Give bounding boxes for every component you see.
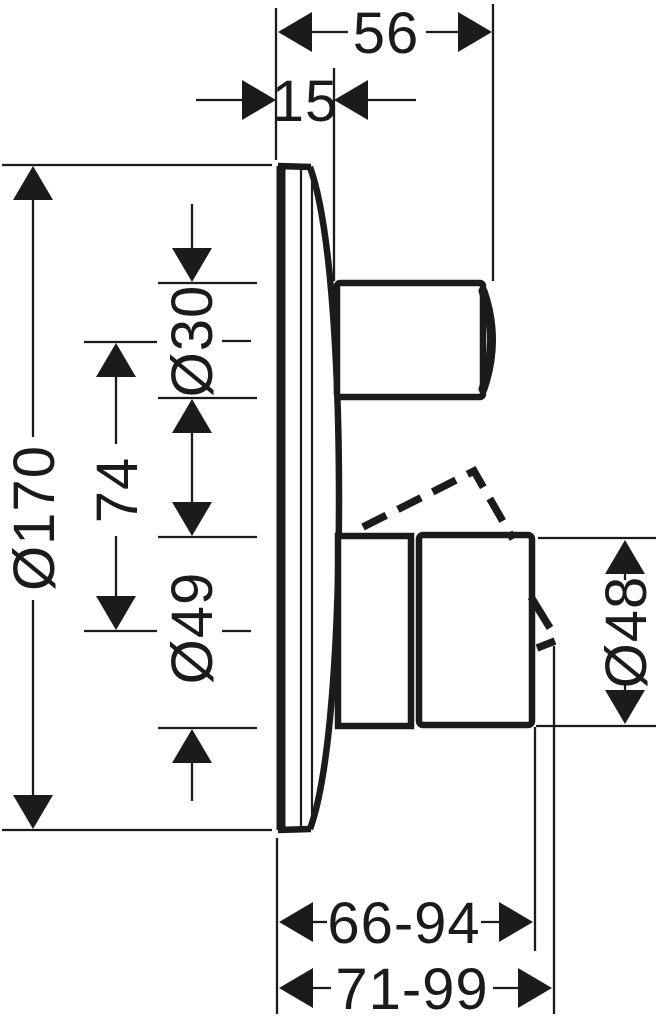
arrow-right-icon: [458, 12, 492, 52]
dimension-15: 15: [196, 68, 416, 281]
lever-base: [338, 536, 411, 726]
dimension-label-30: Ø30: [160, 285, 225, 398]
lever-raised-dashed-outline: [363, 471, 513, 539]
plate-bottom-edge: [278, 829, 311, 830]
arrow-up-icon: [172, 729, 212, 763]
arrow-up-icon: [96, 343, 136, 377]
lever-raised-dash-tip-2: [537, 641, 555, 648]
dimension-label-56: 56: [353, 1, 420, 66]
plate-top-edge: [278, 166, 311, 167]
arrow-left-icon: [279, 968, 313, 1008]
arrow-down-icon: [172, 502, 212, 536]
arrow-right-icon: [499, 902, 533, 942]
fixture: [278, 166, 555, 830]
arrow-down-icon: [172, 248, 212, 282]
arrow-right-icon: [518, 968, 552, 1008]
technical-dimension-drawing: 56 15 Ø170: [0, 0, 658, 1024]
dimension-label-48: Ø48: [594, 576, 658, 689]
dimension-label-15: 15: [272, 69, 339, 134]
dimension-label-71-99: 71-99: [335, 957, 488, 1022]
arrow-up-icon: [172, 399, 212, 433]
drawing-svg: 56 15 Ø170: [0, 0, 658, 1024]
dimension-label-74: 74: [85, 457, 150, 524]
dimension-56: 56: [276, 1, 493, 281]
thermostat-knob: [337, 283, 483, 397]
arrow-up-icon: [13, 166, 53, 200]
arrow-up-icon: [605, 540, 645, 574]
arrow-left-icon: [334, 80, 368, 120]
arrow-down-icon: [96, 596, 136, 630]
dimension-label-49: Ø49: [160, 572, 225, 685]
arrow-down-icon: [13, 795, 53, 829]
dimension-label-170: Ø170: [2, 445, 67, 591]
arrow-left-icon: [278, 12, 312, 52]
arrow-left-icon: [279, 902, 313, 942]
arrow-down-icon: [605, 690, 645, 724]
lever-grip: [419, 535, 532, 725]
dimension-49: Ø49: [158, 537, 257, 801]
dimension-30: Ø30: [158, 204, 257, 536]
dimension-label-66-94: 66-94: [327, 891, 480, 956]
